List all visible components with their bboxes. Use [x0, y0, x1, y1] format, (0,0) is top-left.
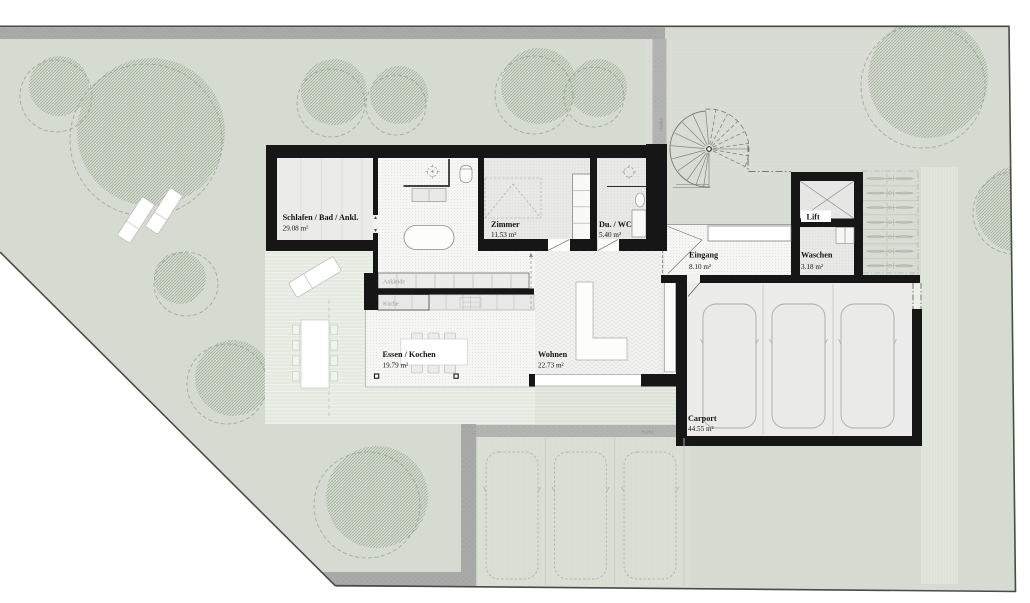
svg-text:8.10 m²: 8.10 m² — [689, 263, 711, 271]
svg-text:Schlafen / Bad / Ankl.: Schlafen / Bad / Ankl. — [283, 213, 359, 222]
svg-text:Waschen: Waschen — [801, 250, 833, 259]
svg-text:Hecke: Hecke — [641, 430, 654, 435]
svg-text:29.08 m²: 29.08 m² — [283, 225, 309, 233]
svg-text:22.73 m²: 22.73 m² — [538, 362, 564, 370]
svg-text:Hecke: Hecke — [659, 118, 664, 131]
svg-text:44.55 m²: 44.55 m² — [688, 425, 714, 433]
svg-text:Ankleide: Ankleide — [383, 280, 405, 286]
svg-text:Wohnen: Wohnen — [538, 350, 568, 359]
svg-text:Zimmer: Zimmer — [491, 220, 520, 229]
svg-text:Essen / Kochen: Essen / Kochen — [383, 350, 437, 359]
svg-text:Du. / WC: Du. / WC — [599, 220, 632, 229]
svg-text:5.40 m²: 5.40 m² — [599, 231, 621, 239]
svg-text:Eingang: Eingang — [689, 250, 719, 259]
svg-text:Lift: Lift — [807, 212, 820, 221]
svg-text:3.18 m²: 3.18 m² — [801, 263, 823, 271]
svg-text:19.79 m²: 19.79 m² — [383, 362, 409, 370]
svg-text:Küche: Küche — [383, 302, 399, 308]
svg-text:Carport: Carport — [688, 414, 717, 423]
svg-text:11.53 m²: 11.53 m² — [491, 231, 516, 239]
